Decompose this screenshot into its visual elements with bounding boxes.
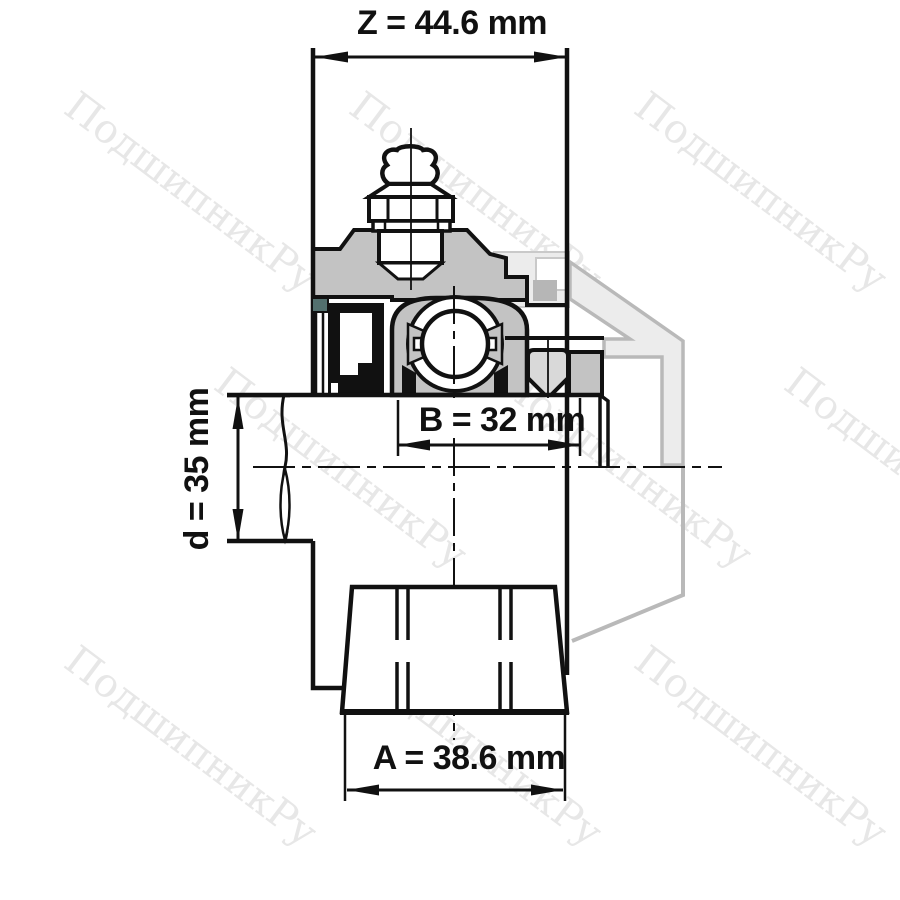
housing-left-lower-edge (313, 541, 343, 688)
bearing-drawing-canvas: ПодшипникРу ПодшипникРу ПодшипникРу Подш… (0, 0, 900, 900)
flinger-lines (316, 312, 323, 395)
ghost-step-inner (533, 280, 557, 301)
dim-d-arrow-bottom (233, 509, 244, 541)
grease-fitting-dome (382, 146, 437, 184)
watermark-text: ПодшипникРу (56, 83, 326, 302)
foot (340, 587, 569, 712)
dimension-b: B = 32 mm (398, 398, 585, 456)
dim-z-label: Z = 44.6 mm (357, 4, 547, 42)
seal-assembly (312, 298, 384, 395)
dim-d-label: d = 35 mm (178, 388, 216, 551)
dim-a-arrow-left (347, 785, 379, 796)
bearing-unit-drawing: ПодшипникРу ПодшипникРу ПодшипникРу Подш… (0, 0, 900, 900)
slinger-accent (312, 298, 328, 312)
dim-z-arrow-right (534, 52, 567, 63)
watermark-text: ПодшипникРу (56, 637, 326, 856)
dim-b-label: B = 32 mm (419, 401, 586, 439)
locking-collar (569, 352, 602, 395)
watermark-text: ПодшипникРу (491, 359, 761, 578)
foot-trapezoid (342, 587, 567, 712)
watermark-text: ПодшипникРу (626, 83, 896, 302)
dim-z-arrow-left (315, 52, 348, 63)
dimension-z: Z = 44.6 mm (315, 4, 567, 63)
watermark-text: ПодшипникРу (626, 637, 896, 856)
bearing (392, 297, 604, 398)
dim-a-label: A = 38.6 mm (373, 739, 566, 777)
dim-b-arrow-left (398, 440, 430, 451)
watermark-text: ПодшипникРу (776, 359, 900, 578)
shaft-break-lens (281, 469, 290, 540)
